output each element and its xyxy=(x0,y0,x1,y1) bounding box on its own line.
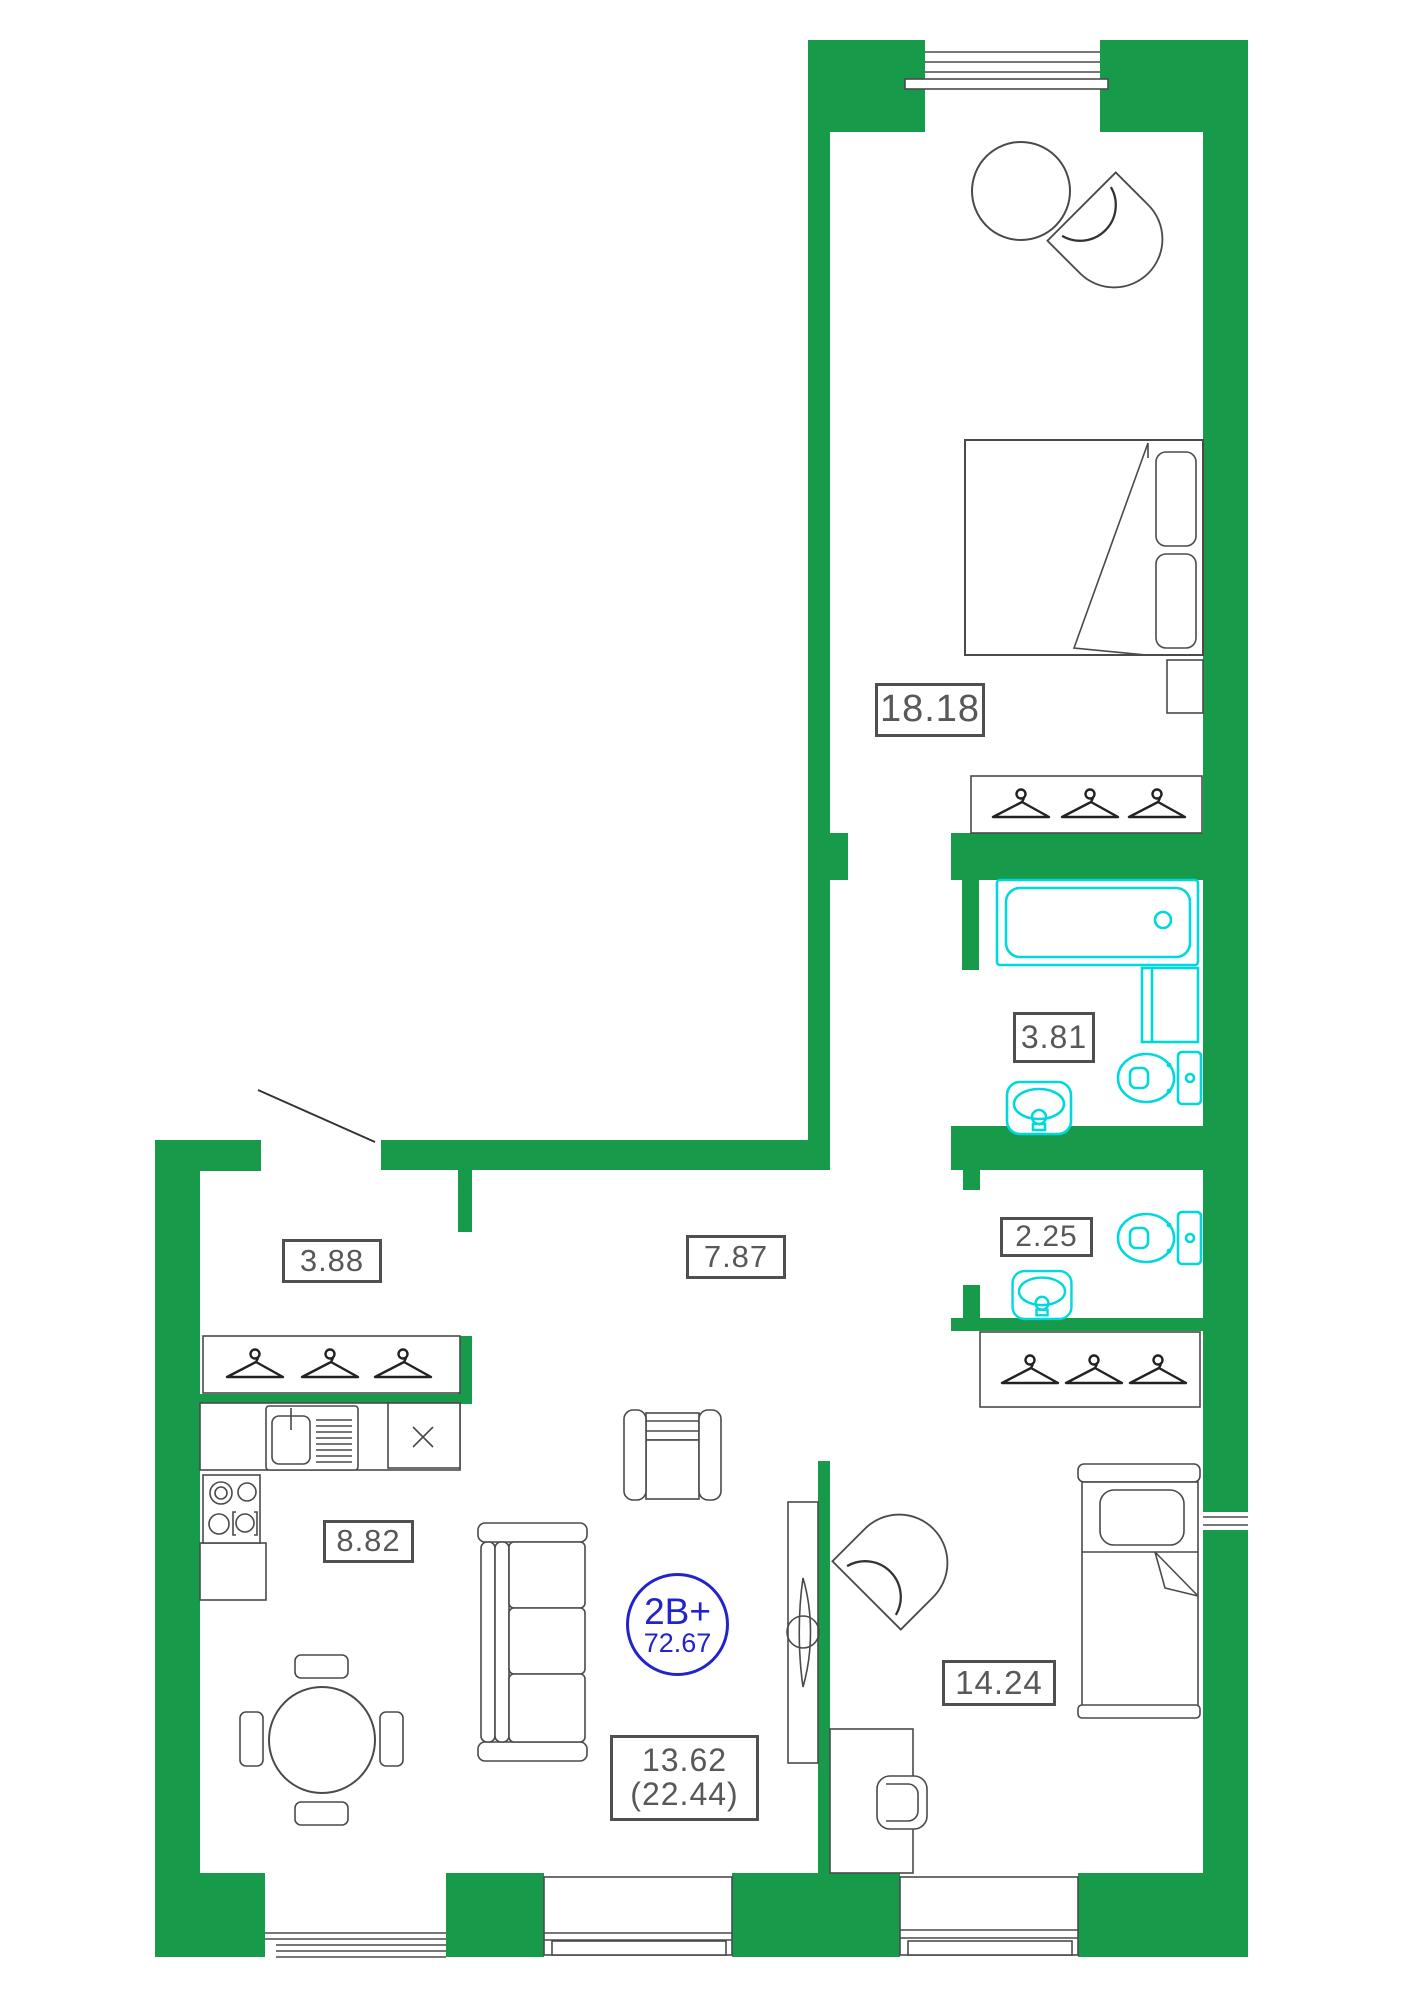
sink xyxy=(1007,1082,1071,1134)
nightstand xyxy=(1167,660,1203,713)
dining-chair xyxy=(295,1802,348,1825)
window-bottom-left xyxy=(265,1933,446,1957)
child-tub-chair xyxy=(832,1495,967,1630)
unit-type-label: 2B+ xyxy=(644,1593,711,1630)
toilet xyxy=(1118,1212,1201,1264)
room-label-hall-closet: 3.88 xyxy=(282,1239,382,1283)
dining-chair xyxy=(295,1655,348,1678)
room-area-value: 7.87 xyxy=(704,1241,768,1274)
room-label-corridor: 7.87 xyxy=(686,1235,786,1279)
hall-wardrobe xyxy=(203,1336,460,1393)
room-label-kitchen: 8.82 xyxy=(323,1520,414,1563)
armchair xyxy=(624,1410,721,1500)
room-area-value: 3.88 xyxy=(300,1245,364,1278)
room-label-child-bedroom: 14.24 xyxy=(942,1660,1056,1706)
room-area-value-secondary: (22.44) xyxy=(630,1778,738,1812)
dining-chair xyxy=(380,1712,403,1766)
room-area-value: 2.25 xyxy=(1015,1221,1077,1253)
sofa xyxy=(478,1523,587,1761)
dining-table xyxy=(240,1655,403,1825)
sink xyxy=(1013,1271,1072,1319)
window-bottom-right xyxy=(900,1877,1078,1955)
stove xyxy=(203,1475,260,1543)
room-area-value: 14.24 xyxy=(955,1666,1043,1701)
furniture-layer xyxy=(0,0,1414,2000)
window-right-wall xyxy=(1203,1512,1248,1530)
room-area-value: 8.82 xyxy=(336,1525,400,1558)
double-bed xyxy=(965,440,1203,655)
unit-total-area: 72.67 xyxy=(644,1630,712,1657)
tv-stand xyxy=(787,1502,819,1763)
window-bottom-center xyxy=(544,1877,732,1955)
toilet xyxy=(1118,1052,1201,1104)
window-top xyxy=(905,52,1108,89)
single-bed xyxy=(1078,1464,1200,1718)
child-wardrobe xyxy=(980,1332,1200,1407)
room-label-bathroom: 3.81 xyxy=(1013,1012,1095,1063)
room-area-value: 18.18 xyxy=(880,690,980,730)
washing-machine xyxy=(1142,968,1198,1042)
unit-type-badge: 2B+ 72.67 xyxy=(626,1573,729,1676)
floor-plan: 18.18 3.81 2.25 3.88 7.87 8.82 14.24 13.… xyxy=(0,0,1414,2000)
room-area-value: 3.81 xyxy=(1021,1021,1087,1055)
dining-chair xyxy=(240,1712,263,1766)
entry-door-swing xyxy=(258,1090,375,1142)
room-area-value: 13.62 xyxy=(642,1744,727,1778)
room-label-bedroom: 18.18 xyxy=(875,683,985,737)
desk-chair xyxy=(877,1776,927,1829)
bathtub xyxy=(997,880,1198,965)
bedroom-round-table xyxy=(972,142,1070,240)
room-label-living-room: 13.62 (22.44) xyxy=(610,1735,759,1821)
room-label-wc: 2.25 xyxy=(1000,1217,1093,1257)
bedroom-wardrobe xyxy=(971,776,1202,833)
